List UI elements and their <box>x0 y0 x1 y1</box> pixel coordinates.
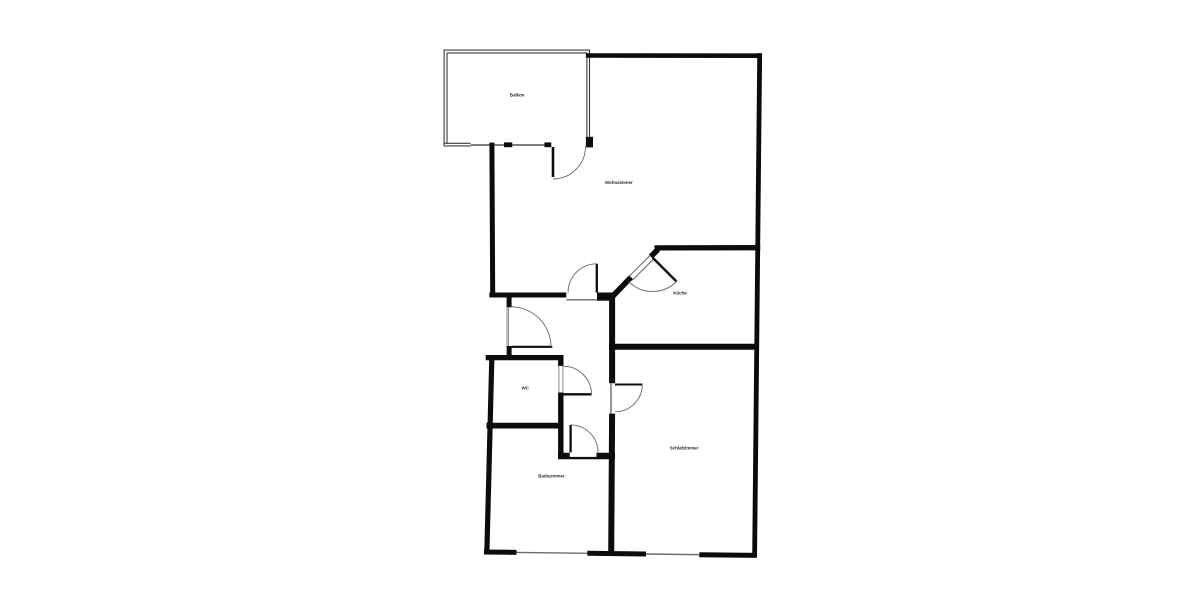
svg-text:Wohnzimmer: Wohnzimmer <box>605 180 633 185</box>
svg-text:WC: WC <box>521 386 529 391</box>
svg-text:Balkon: Balkon <box>510 92 525 97</box>
svg-text:Küche: Küche <box>673 291 687 296</box>
svg-text:Schlafzimmer: Schlafzimmer <box>670 445 699 450</box>
svg-text:Badezimmer: Badezimmer <box>538 473 565 478</box>
